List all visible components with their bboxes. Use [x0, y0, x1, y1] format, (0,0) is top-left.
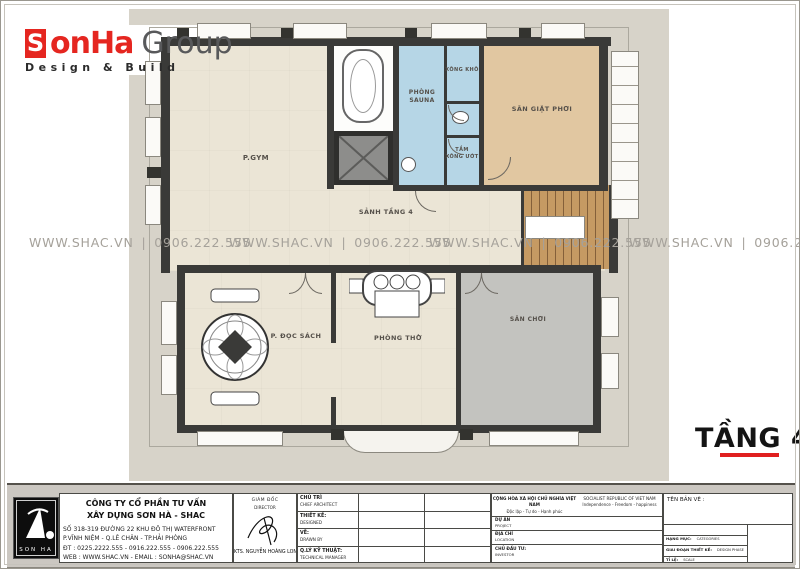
drawing-meta-cell: TÊN BẢN VẼ : HẠNG MỤC: CATEGORIES GIAI Đ… [663, 493, 793, 563]
role-vi: THIẾT KẾ: [300, 513, 356, 520]
roles-grid: CHỦ TRÌCHIEF ARCHITECT THIẾT KẾ:DESIGNED… [297, 493, 491, 563]
wall-pilaster [147, 167, 161, 178]
role-value-cell [359, 494, 424, 511]
label-laundry: SÂN GIẶT PHƠI [496, 105, 588, 113]
label-hall: SẢNH TẦNG 4 [341, 208, 431, 216]
window-frame [145, 185, 161, 225]
role-en: CHIEF ARCHITECT [300, 502, 356, 508]
company-name-line2: XÂY DỰNG SƠN HÀ - SHAC [63, 510, 229, 522]
wall-pilaster [331, 429, 344, 440]
republic-vi1: CỘNG HÒA XÃ HỘI CHỦ NGHĨA VIỆT NAM [492, 496, 577, 509]
republic-en2: Independence - Freedom - happiness [577, 502, 662, 508]
wall-worship-play [456, 273, 461, 425]
watermark: WWW.SHAC.VN | 0906.222.555 [629, 235, 800, 250]
drawing-name-label: TÊN BẢN VẼ : [667, 496, 789, 504]
investor-label-en: INVESTOR [495, 552, 659, 557]
role-vi: CHỦ TRÌ [300, 495, 356, 502]
watermark: WWW.SHAC.VN | 0906.222.555 [429, 235, 651, 250]
elevator-x-icon [339, 136, 388, 180]
role-value-cell [359, 547, 424, 564]
wall-sauna-partition-h1 [444, 101, 479, 104]
label-sauna: PHÒNG SAUNA [399, 89, 445, 104]
label-play: SÂN CHƠI [483, 316, 573, 324]
role-vi: VẼ: [300, 530, 356, 537]
wall-sauna-partition-v [444, 43, 447, 185]
company-info-cell: CÔNG TY CỔ PHẦN TƯ VẤN XÂY DỰNG SƠN HÀ -… [59, 493, 233, 563]
wall-pilaster [281, 28, 293, 38]
brand-initial-block: S [25, 29, 46, 58]
label-reading: P. ĐỌC SÁCH [251, 332, 341, 340]
floor-title-underline [720, 453, 779, 457]
sonha-logo-text: SON HA [14, 547, 58, 553]
director-label-vi: GIÁM ĐỐC [234, 498, 296, 505]
wall-bath-sauna [393, 41, 399, 189]
wall-sauna-laundry [479, 43, 484, 189]
wall-sauna-partition-h2 [444, 135, 479, 138]
label-wet-steam-2: XÔNG ƯỚT [445, 154, 479, 160]
wall-right-upper [599, 37, 608, 191]
company-name-line1: CÔNG TY CỔ PHẦN TƯ VẤN [63, 498, 229, 510]
label-wet-steam-1: TẮM [445, 147, 479, 153]
location-label-en: LOCATION [495, 537, 659, 542]
company-phone: ĐT : 0225.2222.555 - 0916.222.555 - 0906… [63, 544, 229, 553]
brand-name-group: Group [141, 29, 232, 58]
column-stack [611, 51, 639, 219]
window-frame [541, 23, 585, 39]
role-value-cell [425, 529, 490, 546]
label-dry-sauna: XÔNG KHÔ [445, 67, 479, 73]
window-frame [293, 23, 347, 39]
window-frame [601, 297, 619, 337]
bay-window [197, 431, 283, 446]
role-value-cell [359, 529, 424, 546]
brand-tagline: Design & Build [25, 61, 233, 74]
label-gym: P.GYM [211, 154, 301, 163]
bathtub-basin [350, 59, 376, 113]
brand-logo: S onHa Group Design & Build [25, 29, 233, 74]
wall-gym-bath [327, 41, 334, 189]
project-label-en: PROJECT [495, 523, 659, 528]
sonha-logo-icon [20, 504, 59, 544]
company-address2: P.VĨNH NIỆM - Q.LÊ CHÂN - TP.HẢI PHÒNG [63, 534, 229, 543]
role-en: DRAWN BY [300, 537, 356, 543]
brand-name-red: onHa [50, 29, 133, 58]
company-web: WEB : WWW.SHAC.VN - EMAIL : SONHA@SHAC.V… [63, 553, 229, 562]
sonha-logo-box: SON HA [13, 497, 59, 559]
director-cell: GIÁM ĐỐC DIRECTOR KTS. NGUYỄN HOÀNG LONG [233, 493, 297, 563]
porch-steps [489, 431, 579, 446]
role-row: CHỦ TRÌCHIEF ARCHITECT [298, 494, 490, 512]
wall-lower-right [593, 265, 601, 433]
role-en: TECHNICAL MANAGER [300, 555, 356, 561]
role-en: DESIGNED [300, 520, 356, 526]
company-address1: SỐ 318-319 ĐƯỜNG 22 KHU ĐÔ THỊ WATERFRON… [63, 525, 229, 534]
title-block: SON HA CÔNG TY CỔ PHẦN TƯ VẤN XÂY DỰNG S… [7, 483, 795, 568]
republic-project-cell: CỘNG HÒA XÃ HỘI CHỦ NGHĨA VIỆT NAM Độc l… [491, 493, 663, 563]
role-row: THIẾT KẾ:DESIGNED [298, 512, 490, 530]
wall-pilaster [405, 28, 417, 38]
wall-lower-left [177, 265, 185, 433]
curved-bay [343, 431, 459, 453]
floor-title: TẦNG 4 [695, 423, 800, 454]
republic-vi2: Độc lập - Tự do - Hạnh phúc [492, 509, 577, 515]
role-value-cell [425, 512, 490, 529]
watermark: WWW.SHAC.VN | 0906.222.555 [229, 235, 451, 250]
floorplan-page: S onHa Group Design & Build [0, 0, 800, 569]
altar-set [349, 269, 445, 325]
meta-en: DESIGN PHASE [717, 548, 744, 552]
signature-icon [242, 510, 288, 546]
role-value-cell [425, 494, 490, 511]
director-name: KTS. NGUYỄN HOÀNG LONG [234, 550, 296, 555]
wall-pilaster [519, 28, 531, 38]
room-playground [461, 273, 593, 425]
role-vi: Q.LÝ KỸ THUẬT: [300, 548, 356, 555]
window-frame [431, 23, 487, 39]
role-value-cell [359, 512, 424, 529]
role-row: VẼ:DRAWN BY [298, 529, 490, 547]
label-worship: PHÒNG THỜ [353, 334, 443, 342]
window-frame [601, 353, 619, 389]
meta-empty-cell [748, 525, 792, 563]
bathtub [342, 49, 384, 123]
elevator-shaft [334, 131, 393, 185]
reading-table-set [199, 287, 271, 407]
sink [401, 157, 416, 172]
wall-pilaster [460, 429, 473, 440]
watermark: WWW.SHAC.VN | 0906.222.555 [29, 235, 251, 250]
window-frame [161, 301, 177, 345]
wall-reading-worship-b [331, 397, 336, 425]
role-row: Q.LÝ KỸ THUẬT:TECHNICAL MANAGER [298, 547, 490, 564]
role-value-cell [425, 547, 490, 564]
window-frame [161, 355, 177, 395]
window-frame [145, 117, 161, 157]
